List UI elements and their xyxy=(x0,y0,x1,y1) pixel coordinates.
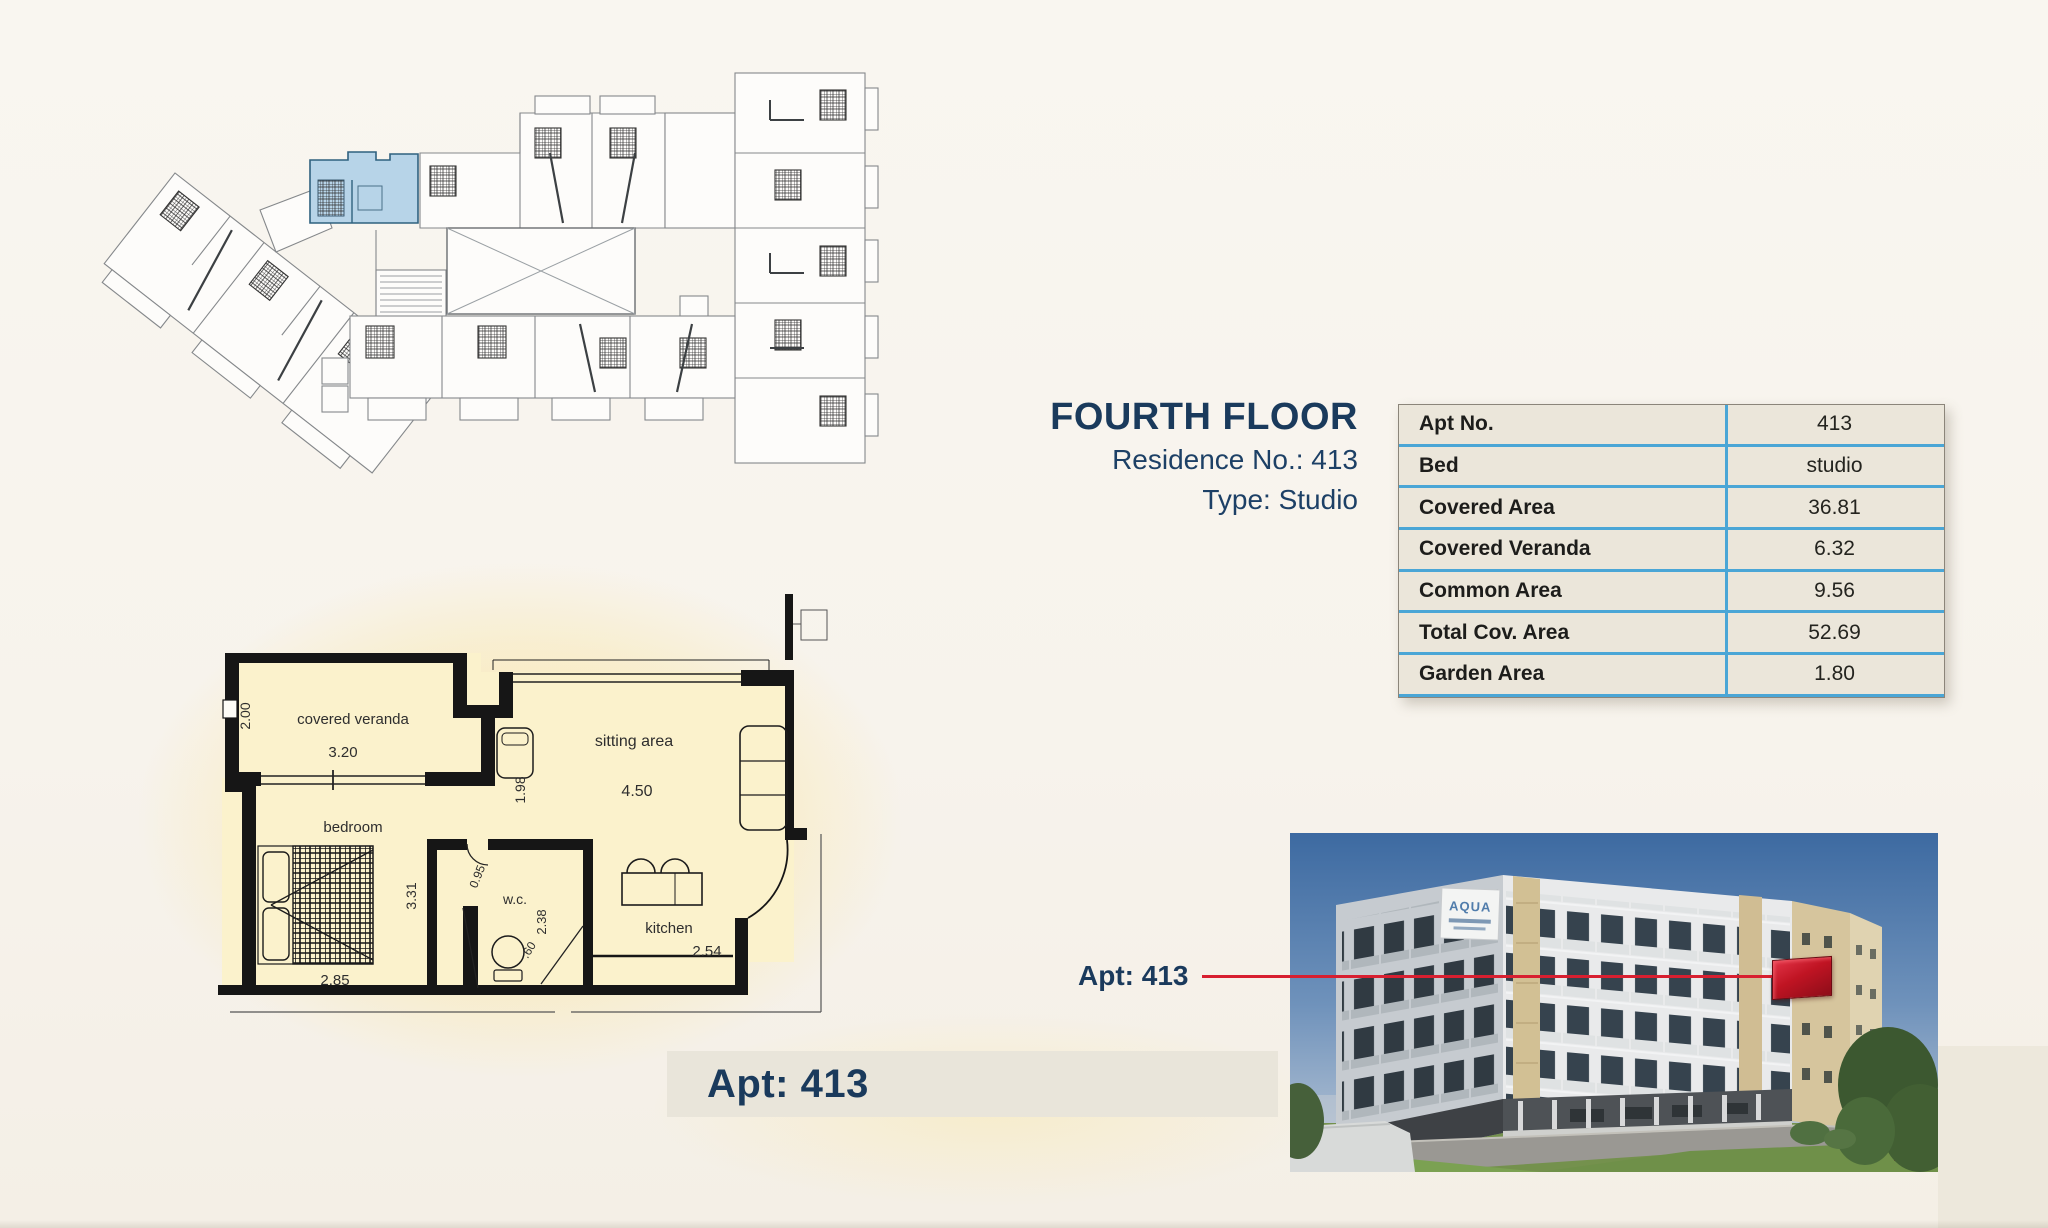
table-row-value: 413 xyxy=(1725,412,1944,436)
table-row: Total Cov. Area 52.69 xyxy=(1399,613,1944,655)
wall-notch xyxy=(223,700,237,718)
table-row: Garden Area 1.80 xyxy=(1399,655,1944,697)
page-title: FOURTH FLOOR xyxy=(938,398,1358,436)
table-row-value: 6.32 xyxy=(1725,537,1944,561)
brochure-page: FOURTH FLOOR Residence No.: 413 Type: St… xyxy=(0,0,2048,1228)
table-row: Covered Area 36.81 xyxy=(1399,488,1944,530)
building-photo: AQUA xyxy=(1290,833,1938,1172)
bedroom-depth: 3.31 xyxy=(403,882,419,909)
apartment-detail-plan: covered veranda 3.20 2.00 sitting area 4… xyxy=(175,588,835,1040)
wc-depth: 2.38 xyxy=(534,909,549,934)
sitting-depth: 1.98 xyxy=(512,776,528,803)
table-row-value: studio xyxy=(1725,454,1944,478)
floor-overview-plan xyxy=(80,58,880,478)
title-block: FOURTH FLOOR Residence No.: 413 Type: St… xyxy=(938,398,1358,516)
photo-callout-label: Apt: 413 xyxy=(1078,960,1208,992)
table-row: Bed studio xyxy=(1399,447,1944,489)
callout-line xyxy=(1202,975,1782,978)
table-row-value: 9.56 xyxy=(1725,579,1944,603)
table-row-label: Covered Veranda xyxy=(1399,537,1725,561)
sitting-label: sitting area xyxy=(595,733,673,750)
table-row-label: Covered Area xyxy=(1399,496,1725,520)
apartment-info-table: Apt No. 413 Bed studio Covered Area 36.8… xyxy=(1398,404,1945,698)
table-column-divider xyxy=(1725,405,1728,697)
highlighted-unit-413 xyxy=(310,152,418,223)
background-band xyxy=(1938,1046,2048,1228)
table-row: Apt No. 413 xyxy=(1399,405,1944,447)
veranda-label: covered veranda xyxy=(297,711,409,728)
kitchen-label: kitchen xyxy=(645,920,693,937)
table-row-label: Common Area xyxy=(1399,579,1725,603)
type-line: Type: Studio xyxy=(938,483,1358,516)
table-row: Covered Veranda 6.32 xyxy=(1399,530,1944,572)
table-row-label: Bed xyxy=(1399,454,1725,478)
photo-scene: AQUA xyxy=(1290,833,1938,1172)
table-row-label: Total Cov. Area xyxy=(1399,621,1725,645)
veranda-depth: 2.00 xyxy=(237,702,253,729)
table-row-label: Garden Area xyxy=(1399,662,1725,686)
wc-label: w.c. xyxy=(502,891,527,907)
apartment-highlight-box xyxy=(1772,956,1832,1000)
overview-structure xyxy=(94,73,878,478)
table-row-value: 52.69 xyxy=(1725,621,1944,645)
apartment-banner: Apt: 413 xyxy=(667,1051,1278,1117)
bottom-shade xyxy=(0,1220,2048,1228)
apartment-banner-label: Apt: 413 xyxy=(667,1062,869,1107)
residence-line: Residence No.: 413 xyxy=(938,443,1358,476)
table-row: Common Area 9.56 xyxy=(1399,572,1944,614)
kitchen-width: 2.54 xyxy=(692,943,721,960)
table-row-value: 36.81 xyxy=(1725,496,1944,520)
building-sign-text: AQUA xyxy=(1449,898,1492,914)
building-sign: AQUA xyxy=(1440,888,1500,940)
veranda-width: 3.20 xyxy=(328,744,357,761)
table-row-label: Apt No. xyxy=(1399,412,1725,436)
table-row-value: 1.80 xyxy=(1725,662,1944,686)
sitting-width: 4.50 xyxy=(621,783,652,800)
bedroom-label: bedroom xyxy=(323,819,382,836)
bedroom-width: 2.85 xyxy=(320,972,349,989)
